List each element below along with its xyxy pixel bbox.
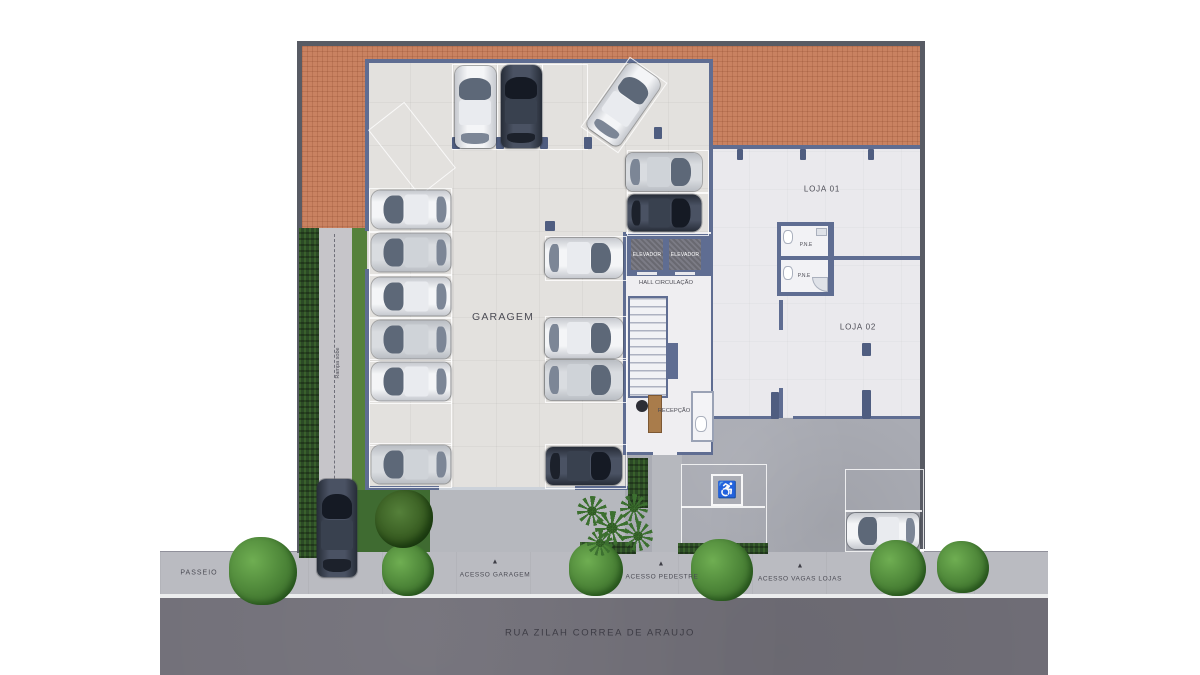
car-glass <box>858 517 877 544</box>
car-rear <box>550 453 560 480</box>
column-stub <box>737 149 743 160</box>
palm-tree <box>620 494 648 522</box>
core-wall-bottom-a <box>625 452 653 455</box>
toilet-pne-2 <box>783 266 793 280</box>
car-roof <box>505 99 537 124</box>
car-rear <box>323 559 351 572</box>
bush <box>229 537 297 605</box>
street-name-label: RUA ZILAH CORREA DE ARAUJO <box>505 628 695 639</box>
shop2-wall-left-a <box>779 300 783 330</box>
core-wall-bottom-b <box>677 452 711 455</box>
reception-walkway <box>652 455 682 552</box>
ramp-label: Rampa sobe <box>335 347 341 378</box>
staircase <box>628 296 668 398</box>
elevator-2: ELEVADOR <box>669 239 701 270</box>
bush <box>870 540 926 596</box>
shop-front-wall-a <box>711 416 773 419</box>
hedge-left-row <box>299 228 319 558</box>
car-top-view <box>545 360 623 400</box>
car-glass <box>383 450 404 479</box>
car-rear <box>549 366 559 394</box>
car-rear <box>436 283 446 310</box>
reception-chair <box>636 400 648 412</box>
garage-label: GARAGEM <box>472 311 534 323</box>
car-glass <box>591 365 611 395</box>
shop-front-wall-c <box>871 416 920 419</box>
car-roof <box>405 324 429 354</box>
column-stub <box>771 392 779 419</box>
car-roof <box>567 364 590 395</box>
toilet-reception <box>695 416 707 432</box>
pne-2-label: P.N.E <box>798 273 810 279</box>
garage-access-label: ACESSO GARAGEM <box>460 572 531 579</box>
car-top-view <box>372 277 451 315</box>
car-top-view <box>317 479 357 577</box>
car-rear <box>436 368 446 395</box>
hall-label: HALL CIRCULAÇÃO <box>639 280 693 286</box>
car-top-view <box>546 447 622 485</box>
column-stub <box>545 221 555 231</box>
shop1-label: LOJA 01 <box>804 185 840 194</box>
sidewalk-label: PASSEIO <box>180 570 217 577</box>
car-rear <box>436 239 446 266</box>
garage-access-arrow-icon: ▲ <box>492 559 499 566</box>
bush <box>691 539 753 601</box>
garage-wall-top <box>367 59 711 63</box>
car-top-view <box>372 362 451 400</box>
boundary-wall-top <box>297 41 925 46</box>
car-glass <box>383 238 404 267</box>
car-glass <box>671 199 690 227</box>
column-stub <box>862 343 871 356</box>
car-roof <box>405 449 429 479</box>
car-glass <box>671 158 691 187</box>
column-stub <box>868 149 874 160</box>
car-top-view <box>455 66 496 148</box>
column-stub <box>584 137 592 149</box>
elevator-1-door <box>637 272 657 275</box>
shop2-label: LOJA 02 <box>840 323 876 332</box>
tree <box>375 490 433 548</box>
column-stub <box>800 149 806 160</box>
car-top-view <box>501 65 542 148</box>
car-glass <box>505 77 536 99</box>
car-top-view <box>372 445 451 483</box>
accessible-spot-divider <box>681 506 765 508</box>
car-top-view <box>545 238 623 278</box>
car-glass <box>383 282 404 311</box>
reception-desk <box>648 395 662 433</box>
car-roof <box>405 281 429 311</box>
car-glass <box>591 452 611 481</box>
car-roof <box>459 100 491 125</box>
car-top-view <box>372 320 451 358</box>
car-glass <box>459 78 490 99</box>
elevator-2-label: ELEVADOR <box>671 252 699 258</box>
car-roof <box>648 199 670 228</box>
shop2-wall-left-b <box>779 388 783 418</box>
sink-pne-1 <box>816 228 827 236</box>
parking-spot-outline <box>542 64 588 150</box>
car-rear <box>549 244 559 272</box>
car-roof <box>321 520 352 549</box>
car-rear <box>436 326 446 353</box>
elevator-1-label: ELEVADOR <box>633 252 661 258</box>
car-glass <box>322 494 352 519</box>
palm-tree <box>623 521 653 551</box>
pne-1-label: P.N.E <box>800 242 812 248</box>
car-roof <box>567 451 590 481</box>
shop-parking-access-arrow-icon: ▲ <box>797 563 804 570</box>
car-roof <box>647 157 670 187</box>
car-roof <box>567 322 590 353</box>
wheelchair-sign-box: ♿ <box>711 474 743 506</box>
car-rear <box>461 133 490 144</box>
pedestrian-access-arrow-icon: ▲ <box>658 561 665 568</box>
column-stub <box>862 390 871 419</box>
pedestrian-access-label: ACESSO PEDESTRE <box>626 574 699 581</box>
elevator-1: ELEVADOR <box>631 239 663 270</box>
parking-spot-outline <box>369 401 452 446</box>
toilet-pne-1 <box>783 230 793 244</box>
bush <box>382 544 434 596</box>
stair-shaft-wall <box>666 343 678 379</box>
wheelchair-icon: ♿ <box>717 480 737 500</box>
car-glass <box>591 243 611 273</box>
column-stub <box>654 127 662 139</box>
car-top-view <box>372 190 451 228</box>
car-glass <box>383 325 404 354</box>
car-top-view <box>545 318 623 358</box>
bush <box>937 541 989 593</box>
car-rear <box>436 451 446 478</box>
floor-plan-stage: ELEVADOR ELEVADOR ♿ GARAGEM LOJA 01 LOJA… <box>0 0 1200 675</box>
car-top-view <box>626 153 702 191</box>
car-top-view <box>372 233 451 271</box>
elevator-2-door <box>675 272 695 275</box>
palm-tree <box>587 530 613 556</box>
car-rear <box>436 196 446 223</box>
shop-front-wall-b <box>793 416 862 419</box>
car-rear <box>631 200 641 226</box>
car-rear <box>549 324 559 352</box>
car-roof <box>405 194 429 224</box>
car-glass <box>591 323 611 353</box>
car-glass <box>383 367 404 396</box>
car-roof <box>567 242 590 273</box>
car-rear <box>906 518 915 543</box>
car-rear <box>507 133 536 144</box>
reception-label: RECEPÇÃO <box>658 408 691 414</box>
shop-parking-access-label: ACESSO VAGAS LOJAS <box>758 576 842 583</box>
car-roof <box>405 237 429 267</box>
shop-spots-divider <box>845 510 922 512</box>
car-glass <box>383 195 404 224</box>
car-roof <box>405 366 429 396</box>
car-top-view <box>627 195 701 232</box>
car-rear <box>630 159 640 186</box>
